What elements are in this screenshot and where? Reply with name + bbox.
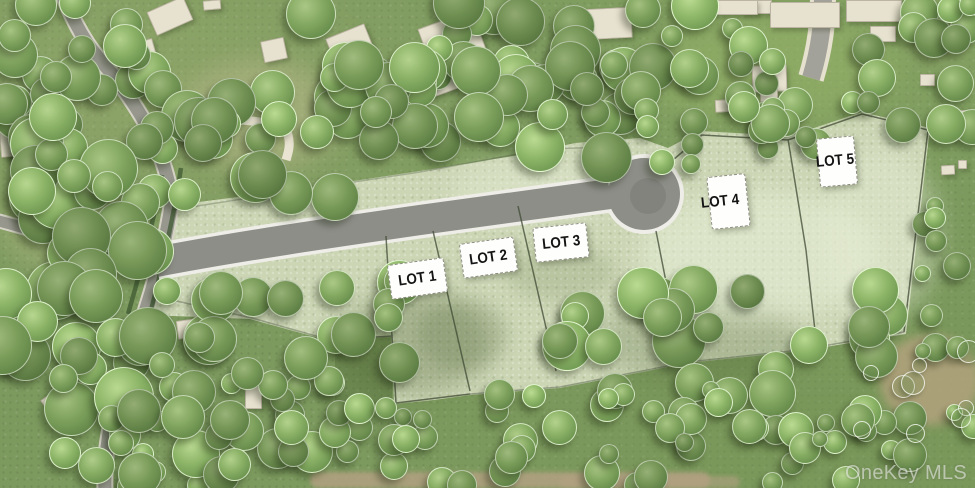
- lot-boundary-line: [470, 332, 904, 394]
- loop-driveway: [205, 119, 289, 160]
- lot-boundary-line: [673, 135, 788, 160]
- watermark-onekey-mls: OneKey MLS: [845, 462, 967, 485]
- lot-boundary-line: [172, 300, 330, 340]
- lot-boundary-line: [656, 231, 681, 358]
- lot-1-label-text: LOT 1: [397, 267, 437, 289]
- side-road: [0, 220, 100, 252]
- lot-2-label-text: LOT 2: [468, 246, 508, 268]
- cul-de-sac-center: [630, 178, 666, 214]
- lot-boundary-line: [788, 114, 928, 140]
- lot-3-label-box: LOT 3: [532, 222, 589, 262]
- lot-5-label-text: LOT 5: [815, 151, 855, 171]
- lot-boundary-line: [788, 139, 816, 340]
- site-plan-aerial-map: LOT 1 LOT 2 LOT 3 LOT 4 LOT 5 OneKey MLS: [0, 0, 975, 488]
- lot-label-3: LOT 3: [532, 222, 589, 262]
- lot-boundary-line: [330, 336, 470, 403]
- lot-label-4: LOT 4: [706, 173, 750, 230]
- lot-label-5: LOT 5: [816, 135, 858, 187]
- lot-boundary-line: [904, 130, 928, 332]
- lot-3-label-text: LOT 3: [541, 232, 581, 253]
